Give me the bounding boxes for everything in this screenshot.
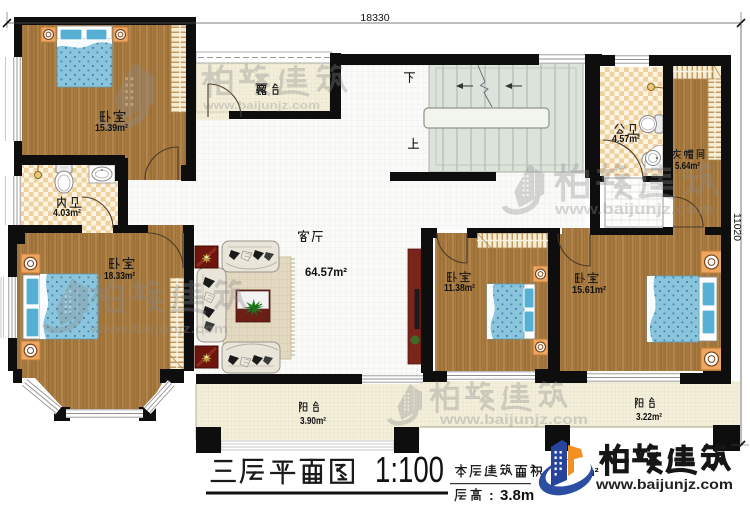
svg-text:www.baijunjz.com: www.baijunjz.com	[595, 477, 733, 492]
svg-text:3.90m²: 3.90m²	[300, 416, 327, 427]
svg-text:3.22m²: 3.22m²	[636, 412, 663, 423]
svg-text:www.baijunjz.com: www.baijunjz.com	[554, 201, 714, 218]
svg-text:1:100: 1:100	[375, 449, 444, 490]
svg-text:64.57m²: 64.57m²	[305, 265, 347, 279]
svg-text:5.64m²: 5.64m²	[675, 161, 701, 172]
svg-text:15.61m²: 15.61m²	[572, 285, 607, 296]
svg-text:18330: 18330	[360, 12, 389, 24]
svg-text:3.8m: 3.8m	[500, 487, 534, 504]
svg-text:11.38m²: 11.38m²	[444, 283, 476, 294]
svg-text::: :	[489, 487, 494, 503]
svg-text:11020: 11020	[731, 213, 743, 241]
svg-text:15.39m²: 15.39m²	[95, 122, 128, 134]
svg-text:www.baijunjz.com: www.baijunjz.com	[439, 411, 588, 427]
svg-text:www.baijunjz.com: www.baijunjz.com	[89, 321, 228, 336]
svg-text:18.33m²: 18.33m²	[104, 270, 135, 282]
svg-text:4.57m²: 4.57m²	[612, 133, 640, 145]
svg-text:www.baijunjz.com: www.baijunjz.com	[202, 100, 320, 112]
svg-text:4.03m²: 4.03m²	[53, 207, 81, 219]
